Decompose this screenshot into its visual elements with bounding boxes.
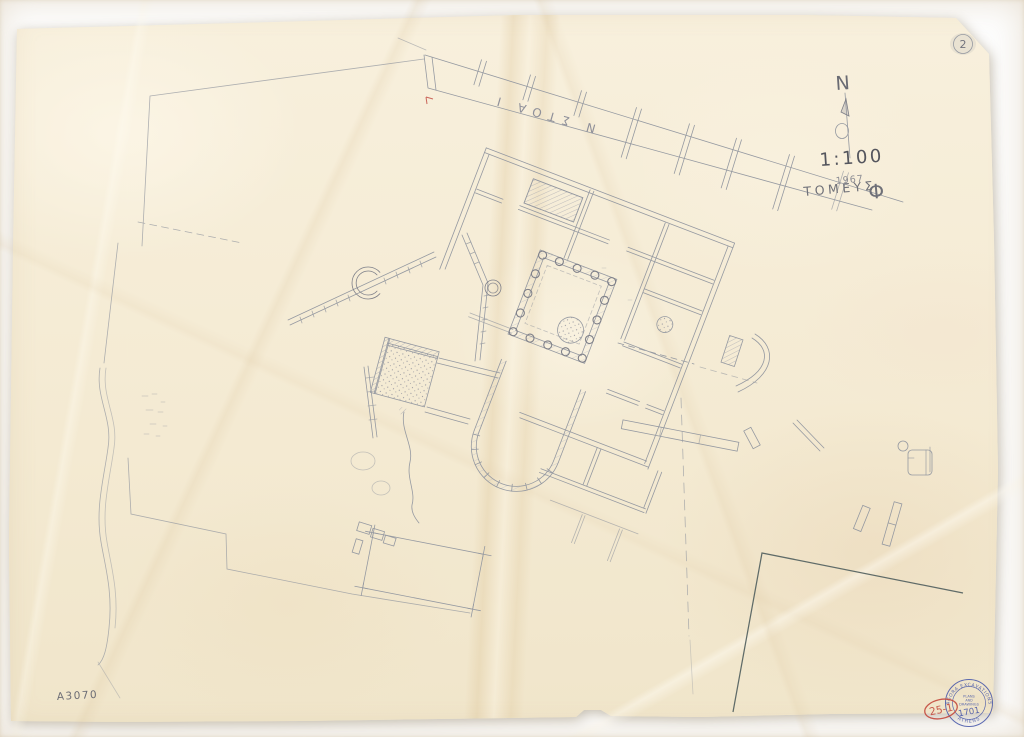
pit-outline [351,452,375,470]
courtyard-pit-feature [554,313,588,347]
north-arrow-label: N [835,72,851,95]
well-structure [898,441,932,475]
peristyle-courtyard [508,250,617,363]
sector-label: ΤΟΜΕΥΣ [802,178,877,199]
pit-outline-small [372,481,390,495]
southeast-rooms [519,431,662,567]
sheet-number: 2 [960,38,967,51]
west-annex [350,337,500,563]
scanned-drawing-page: N 1:100 1967 ΤΟΜΕΥΣ Φ Ν ΣΤΟΑ Ι 2 A3070 A… [0,0,1024,737]
sheet-number-badge: 2 [950,33,976,55]
eastern-features [618,334,932,694]
scale-label: 1:100 [819,146,885,171]
long-wall-bar [621,420,739,451]
scarp-line [403,412,419,523]
inventory-number: A3070 [57,689,99,703]
red-registration-mark [426,97,433,104]
north-arrow: N [835,72,851,158]
west-outer-wall [440,148,491,271]
grid-dashed-line [681,398,689,636]
north-range-wall [475,189,714,284]
north-outer-wall [485,148,735,248]
south-east-wall [518,412,650,467]
oblique-wall-west-court [462,233,501,361]
small-pit-feature [654,314,675,335]
oblique-wall-northwest [288,252,436,325]
boundary-line-dark [733,553,963,712]
stoa-label: Ν ΣΤΟΑ Ι [489,92,597,135]
hatched-stair-room [524,179,583,222]
mosaic-floor-room [370,337,439,407]
archive-stamp: AGORA EXCAVATIONS ATHENS PLANS AND DRAWI… [945,680,993,727]
site-plan-drawing: N 1:100 1967 ΤΟΜΕΥΣ Φ Ν ΣΤΟΑ Ι 2 A3070 A… [0,0,1024,737]
east-outer-wall [643,241,734,469]
round-base-on-wall [352,267,380,299]
sector-letter: Φ [867,179,885,204]
